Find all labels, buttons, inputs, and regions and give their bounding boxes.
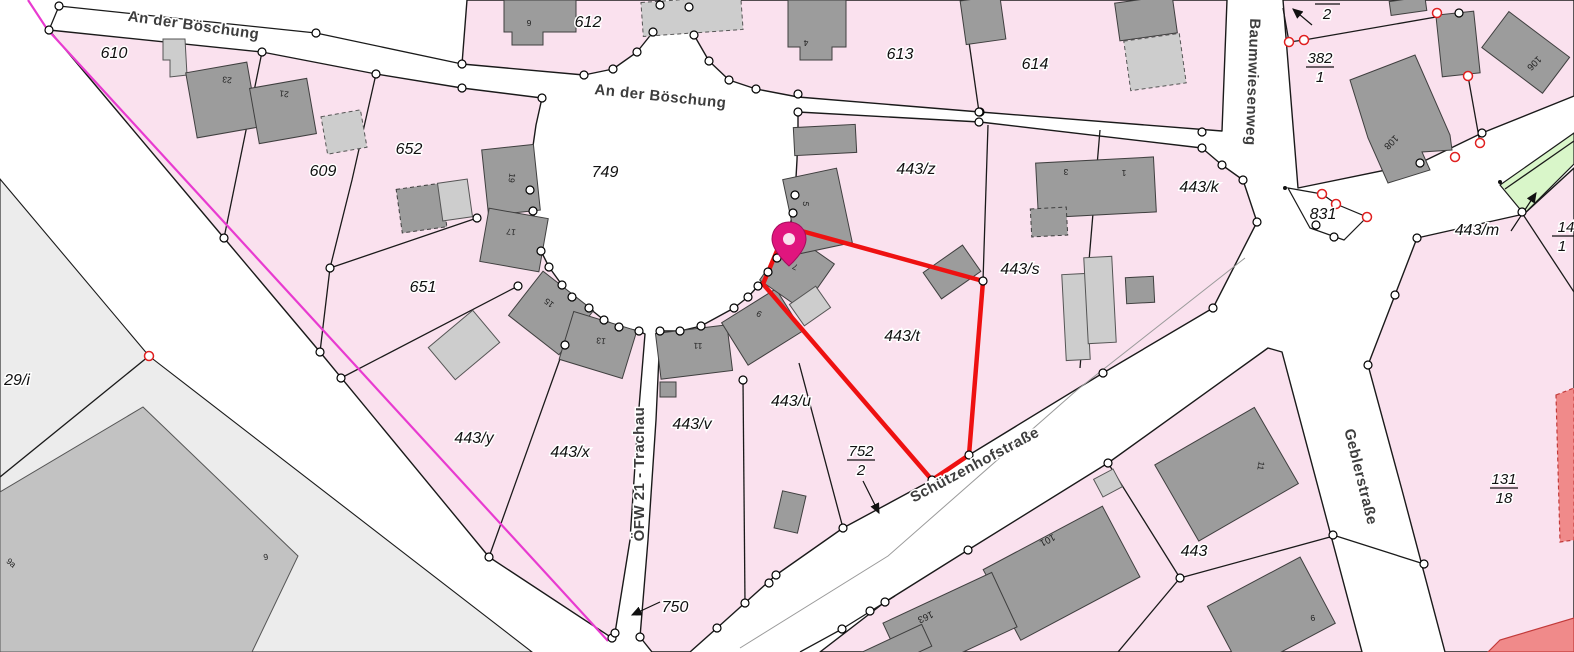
parcel-label-443m: 443/m: [1455, 222, 1499, 239]
parcel-label-610: 610: [101, 45, 128, 62]
building-ring-11: [655, 325, 732, 379]
svg-text:382: 382: [1307, 50, 1333, 67]
house-number-11: 11: [693, 341, 702, 351]
parcel-label-749: 749: [592, 164, 619, 181]
map-canvas[interactable]: An der Böschung An der Böschung Schützen…: [0, 0, 1574, 652]
parcel-label-613: 613: [887, 46, 914, 63]
street-label-oefw-trachau: ÖFW 21 - Trachau: [631, 407, 648, 542]
pin-hole: [783, 233, 795, 245]
building-443v-small: [660, 382, 676, 397]
svg-text:14: 14: [1558, 219, 1574, 236]
building-614b: [1124, 33, 1186, 90]
building-652b: [438, 179, 473, 221]
svg-text:752: 752: [848, 443, 874, 460]
parcel-label-443k: 443/k: [1179, 179, 1219, 196]
parcel-label-443t: 443/t: [884, 328, 920, 345]
parcel-label-443v: 443/v: [672, 416, 712, 433]
building-baumwiesenweg: [1436, 11, 1480, 77]
parcel-label-609: 609: [310, 163, 337, 180]
parcel-label-612: 612: [575, 14, 602, 31]
house-number-19: 19: [506, 173, 517, 184]
svg-text:1: 1: [1558, 238, 1566, 255]
svg-text:2: 2: [1322, 6, 1332, 23]
parcel-label-443s: 443/s: [1000, 261, 1039, 278]
parcel-label-614: 614: [1022, 56, 1049, 73]
house-number-13: 13: [595, 335, 606, 346]
building-21: [250, 78, 317, 143]
svg-text:1: 1: [1316, 69, 1324, 86]
house-number-3: 3: [1063, 167, 1068, 177]
house-number-6: 6: [526, 18, 531, 28]
building-443z-dashed: [1030, 207, 1067, 237]
parcel-label-443z: 443/z: [896, 161, 935, 178]
parcel-label-750: 750: [662, 599, 689, 616]
building-443s-sq: [1125, 276, 1154, 303]
parcel-label-29i: 29/i: [3, 372, 30, 389]
house-number-17: 17: [505, 226, 516, 237]
building-609-dashed: [321, 110, 367, 154]
boundary-dot: [1283, 186, 1287, 190]
building-ring-17: [480, 208, 548, 272]
building-443s-b: [1084, 256, 1116, 343]
cadastral-map[interactable]: An der Böschung An der Böschung Schützen…: [0, 0, 1574, 652]
building-443z-west: [793, 124, 856, 155]
building-topright: [960, 0, 1006, 45]
parcel-label-443y: 443/y: [454, 430, 494, 447]
house-number-23: 23: [221, 74, 232, 85]
building-23: [186, 62, 259, 138]
parcel-label-651: 651: [410, 279, 437, 296]
parcel-label-443x: 443/x: [550, 444, 590, 461]
parcel-label-831: 831: [1310, 206, 1337, 223]
parcel-label-443u: 443/u: [771, 393, 811, 410]
house-number-1: 1: [1121, 168, 1126, 178]
boundary-dot: [1498, 180, 1502, 184]
svg-text:131: 131: [1491, 471, 1516, 488]
house-number-21: 21: [278, 88, 289, 99]
svg-text:18: 18: [1496, 490, 1513, 507]
svg-text:2: 2: [856, 462, 866, 479]
parcel-label-652: 652: [396, 141, 423, 158]
parcel-label-443: 443: [1181, 543, 1208, 560]
house-number-4: 4: [803, 38, 808, 48]
